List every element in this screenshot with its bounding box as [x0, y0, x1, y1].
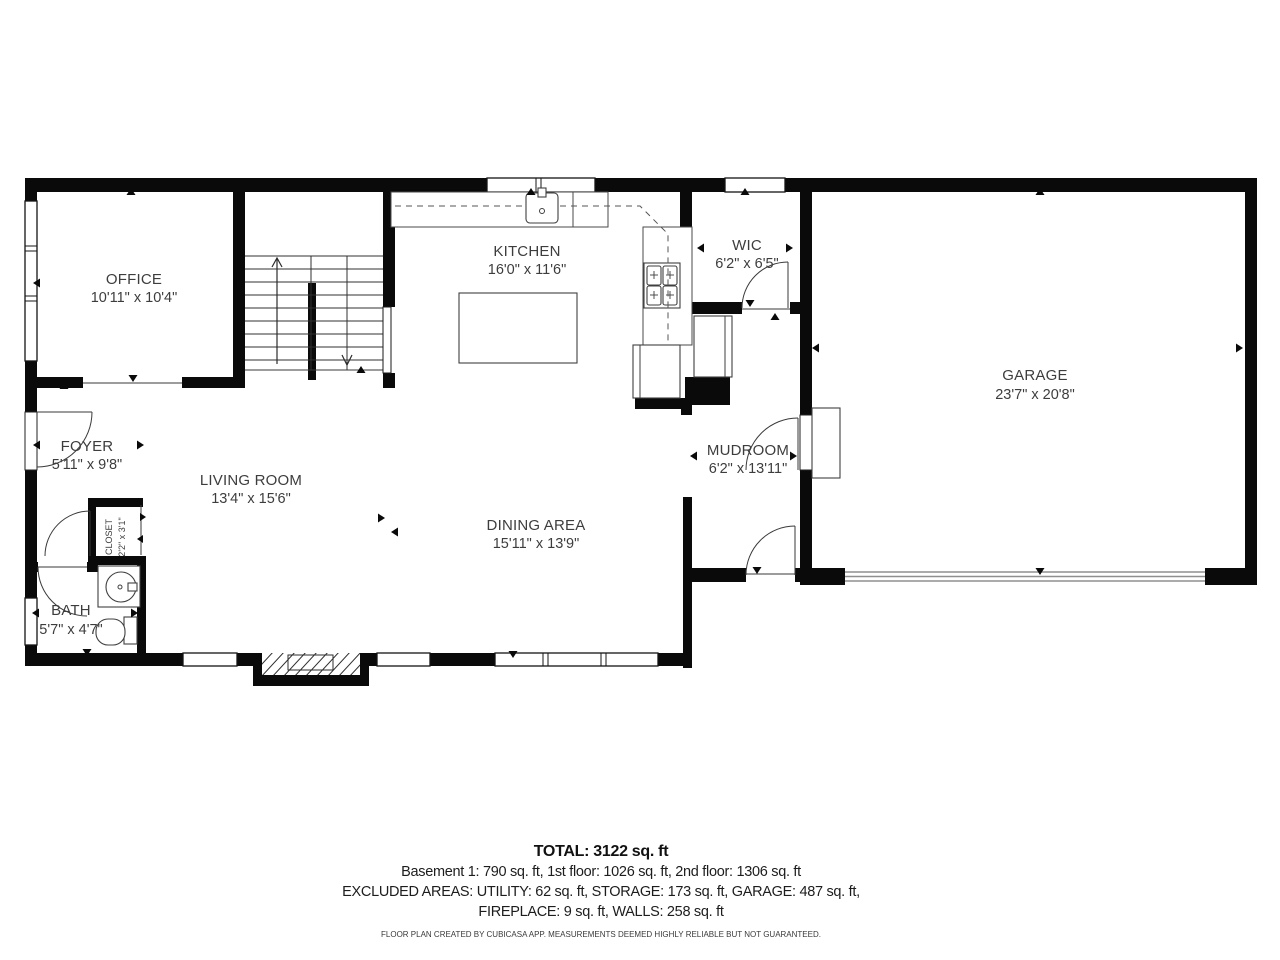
kitchen-label: KITCHEN — [493, 243, 560, 260]
front-door-jamb — [25, 412, 37, 470]
foyer-label: FOYER — [61, 438, 114, 455]
garage-door-jamb — [800, 415, 812, 470]
excluded-areas-1: EXCLUDED AREAS: UTILITY: 62 sq. ft, STOR… — [0, 885, 1202, 900]
floor-plan-page: OFFICE 10'11" x 10'4" KITCHEN 16'0" x 11… — [0, 0, 1280, 960]
stairs-up-arrow — [272, 258, 282, 364]
garage-label: GARAGE — [1002, 367, 1067, 384]
floor-areas: Basement 1: 790 sq. ft, 1st floor: 1026 … — [0, 865, 1202, 880]
kitchen-dims: 16'0" x 11'6" — [488, 262, 566, 278]
closet-dims: 2'2" x 3'1" — [117, 517, 127, 556]
garage-step-landing — [812, 408, 840, 478]
living-room-label: LIVING ROOM — [200, 472, 302, 489]
closet-label: CLOSET — [104, 518, 114, 555]
bath-label: BATH — [51, 602, 91, 619]
mudroom-label: MUDROOM — [707, 442, 789, 459]
excluded-areas-2: FIREPLACE: 9 sq. ft, WALLS: 258 sq. ft — [0, 905, 1202, 920]
wic-label: WIC — [732, 237, 762, 254]
foyer-dims: 5'11" x 9'8" — [52, 457, 122, 473]
stove — [644, 263, 680, 308]
wic-dims: 6'2" x 6'5" — [715, 256, 778, 272]
fireplace — [250, 651, 373, 686]
garage-dims: 23'7" x 20'8" — [995, 387, 1075, 403]
mudroom-dims: 6'2" x 13'11" — [709, 461, 787, 477]
stair-railing — [383, 307, 391, 373]
wic-window — [725, 178, 785, 192]
direction-markers — [32, 188, 1243, 658]
kitchen-island — [459, 293, 577, 363]
walls — [25, 178, 1257, 668]
living-window-2 — [377, 653, 430, 666]
dishwasher — [573, 192, 608, 227]
mudroom-closet — [694, 316, 732, 377]
stairs — [245, 256, 391, 373]
fridge — [633, 345, 680, 398]
office-window — [25, 201, 37, 361]
living-room-dims: 13'4" x 15'6" — [211, 491, 291, 507]
bathroom-sink — [106, 572, 137, 602]
dining-area-label: DINING AREA — [487, 517, 586, 534]
bath-dims: 5'7" x 4'7" — [39, 622, 102, 638]
bath-window — [25, 598, 37, 645]
credit-line: FLOOR PLAN CREATED BY CUBICASA APP. MEAS… — [0, 931, 1202, 939]
living-window-1 — [183, 653, 237, 666]
total-area: TOTAL: 3122 sq. ft — [0, 844, 1202, 860]
kitchen-fixtures — [391, 188, 692, 398]
office-label: OFFICE — [106, 271, 162, 288]
foyer-door — [45, 511, 90, 556]
office-dims: 10'11" x 10'4" — [91, 290, 178, 306]
garage-door — [845, 572, 1205, 581]
dining-area-dims: 15'11" x 13'9" — [493, 536, 580, 552]
floor-plan-svg: OFFICE 10'11" x 10'4" KITCHEN 16'0" x 11… — [0, 0, 1280, 960]
dining-window — [495, 653, 658, 666]
